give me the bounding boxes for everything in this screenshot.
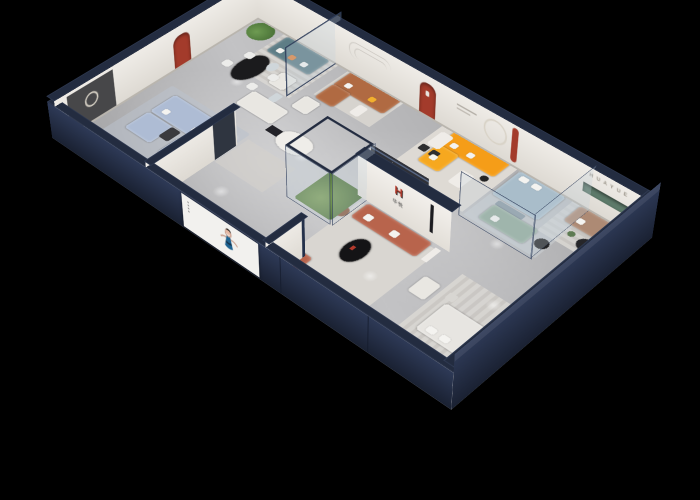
light-ring-decor — [483, 114, 508, 150]
vase-decor — [425, 90, 429, 97]
wall-seam — [367, 316, 368, 353]
display-strip — [430, 204, 434, 233]
round-mirror — [84, 88, 99, 110]
red-accent-panel — [510, 127, 519, 164]
showroom-render: HUAYUE H 华悦 — [0, 0, 700, 500]
poster-caption-marks — [187, 201, 189, 213]
wall-seam — [279, 257, 281, 294]
floor-plan-3d: HUAYUE H 华悦 — [52, 11, 652, 410]
